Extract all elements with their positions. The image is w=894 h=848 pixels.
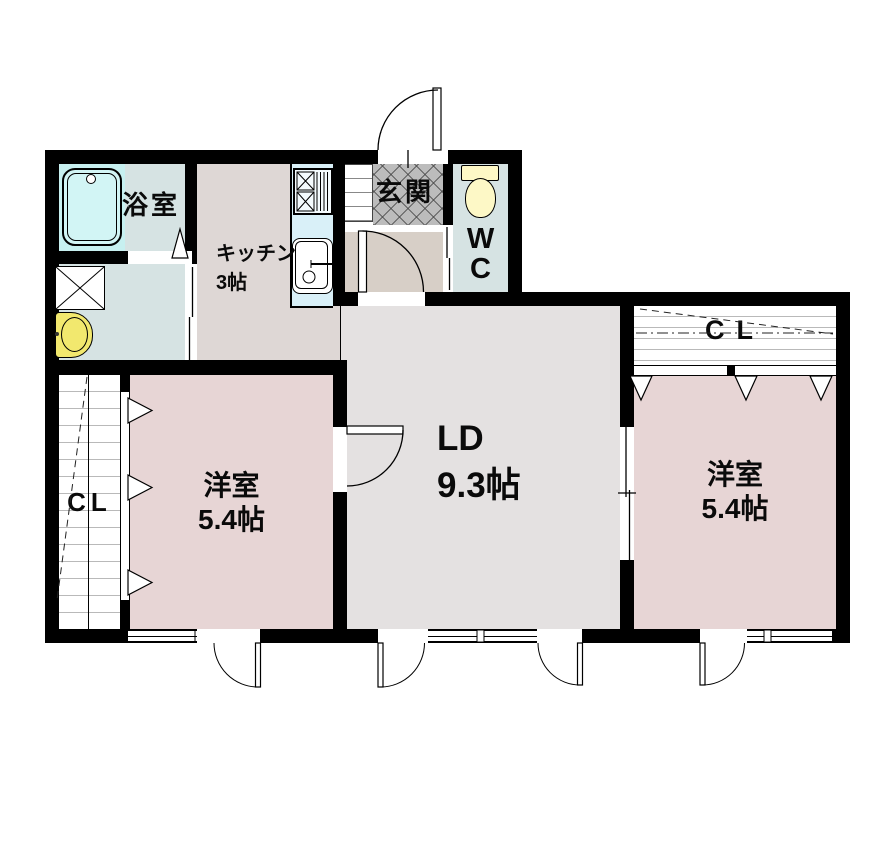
wall-bedl-lower: [333, 492, 347, 629]
bedl-door-gap: [333, 427, 347, 492]
window-bedl: [128, 629, 197, 643]
closet-right-door-stop: [727, 365, 735, 376]
closet-left-door-track: [120, 392, 130, 600]
kitchen-passage-line: [340, 306, 341, 360]
entrance-label: 玄関: [376, 179, 434, 205]
ld-swing-window-left-threshold: [378, 629, 428, 643]
bedl-label-line1: 洋室: [130, 469, 333, 503]
wc-label-line2: C: [453, 254, 508, 284]
shoe-cabinet: [343, 164, 373, 222]
wall-bedl-upper: [333, 375, 347, 427]
ld-label-line1: LD: [437, 415, 521, 462]
wall-band-middle-left: [45, 360, 347, 375]
closet-right-label: CL: [634, 317, 836, 344]
hall-ld-door-threshold: [358, 292, 425, 306]
wall-wc-right: [508, 150, 522, 306]
bathroom-door-gap: [128, 251, 192, 264]
living-dining-label: LD9.3帖: [437, 415, 521, 509]
floor-plan: 浴室 キッチン3帖 玄関 WC CL CL LD9.3帖 洋室5.4帖 洋室5.…: [0, 0, 894, 848]
hall-floor: [343, 232, 443, 292]
bedr-swing-window-icon: [700, 643, 745, 685]
entrance-step: [343, 225, 443, 232]
toilet-bowl-icon: [465, 178, 496, 218]
closet-right-door-track: [634, 365, 836, 376]
bedroom-right-label: 洋室5.4帖: [634, 458, 836, 526]
wall-closetl-lower: [120, 600, 130, 629]
kitchen-passage-floor: [333, 306, 340, 360]
ld-swing-window-right-threshold: [537, 629, 582, 643]
kitchen-label-line1: キッチン: [216, 240, 296, 269]
washroom-sliding-door-gap: [185, 264, 197, 360]
kitchen-label: キッチン3帖: [216, 240, 296, 298]
ld-bedr-sliding-door-gap: [620, 427, 634, 560]
wall-bath-kitchen: [185, 150, 197, 264]
wc-label: WC: [453, 224, 508, 284]
window-ld: [428, 629, 537, 643]
bathtub-icon: [62, 168, 122, 246]
ld-swing-window-right-icon: [538, 643, 583, 685]
bedl-label-line2: 5.4帖: [130, 503, 333, 537]
window-bedr: [747, 629, 832, 643]
washer-space-icon: [55, 266, 105, 310]
bedl-swing-window-threshold: [197, 629, 260, 643]
bathtub-faucet-icon: [86, 174, 96, 184]
ld-swing-window-left-icon: [378, 643, 425, 687]
kitchen-sink-inner: [295, 241, 328, 289]
entrance-door-threshold: [378, 150, 448, 164]
bedroom-left-label: 洋室5.4帖: [130, 469, 333, 537]
bedr-swing-window-threshold: [700, 629, 747, 643]
bathroom-label: 浴室: [122, 192, 180, 218]
wc-sliding-door-gap: [443, 225, 453, 292]
washbasin-knob: [55, 332, 59, 336]
bedl-swing-window-icon: [214, 643, 261, 687]
bedr-label-line2: 5.4帖: [634, 492, 836, 526]
kitchen-label-line2: 3帖: [216, 269, 296, 298]
ld-label-line2: 9.3帖: [437, 462, 521, 509]
wall-kitchen-entrance: [333, 150, 345, 292]
wc-label-line1: W: [453, 224, 508, 254]
wall-closetl-upper: [120, 375, 130, 392]
bedr-label-line1: 洋室: [634, 458, 836, 492]
closet-left-label: CL: [59, 489, 120, 515]
wall-left: [45, 150, 59, 643]
washbasin-bowl: [61, 317, 88, 352]
wall-right: [836, 292, 850, 643]
kitchen-sink-icon: [292, 238, 333, 294]
